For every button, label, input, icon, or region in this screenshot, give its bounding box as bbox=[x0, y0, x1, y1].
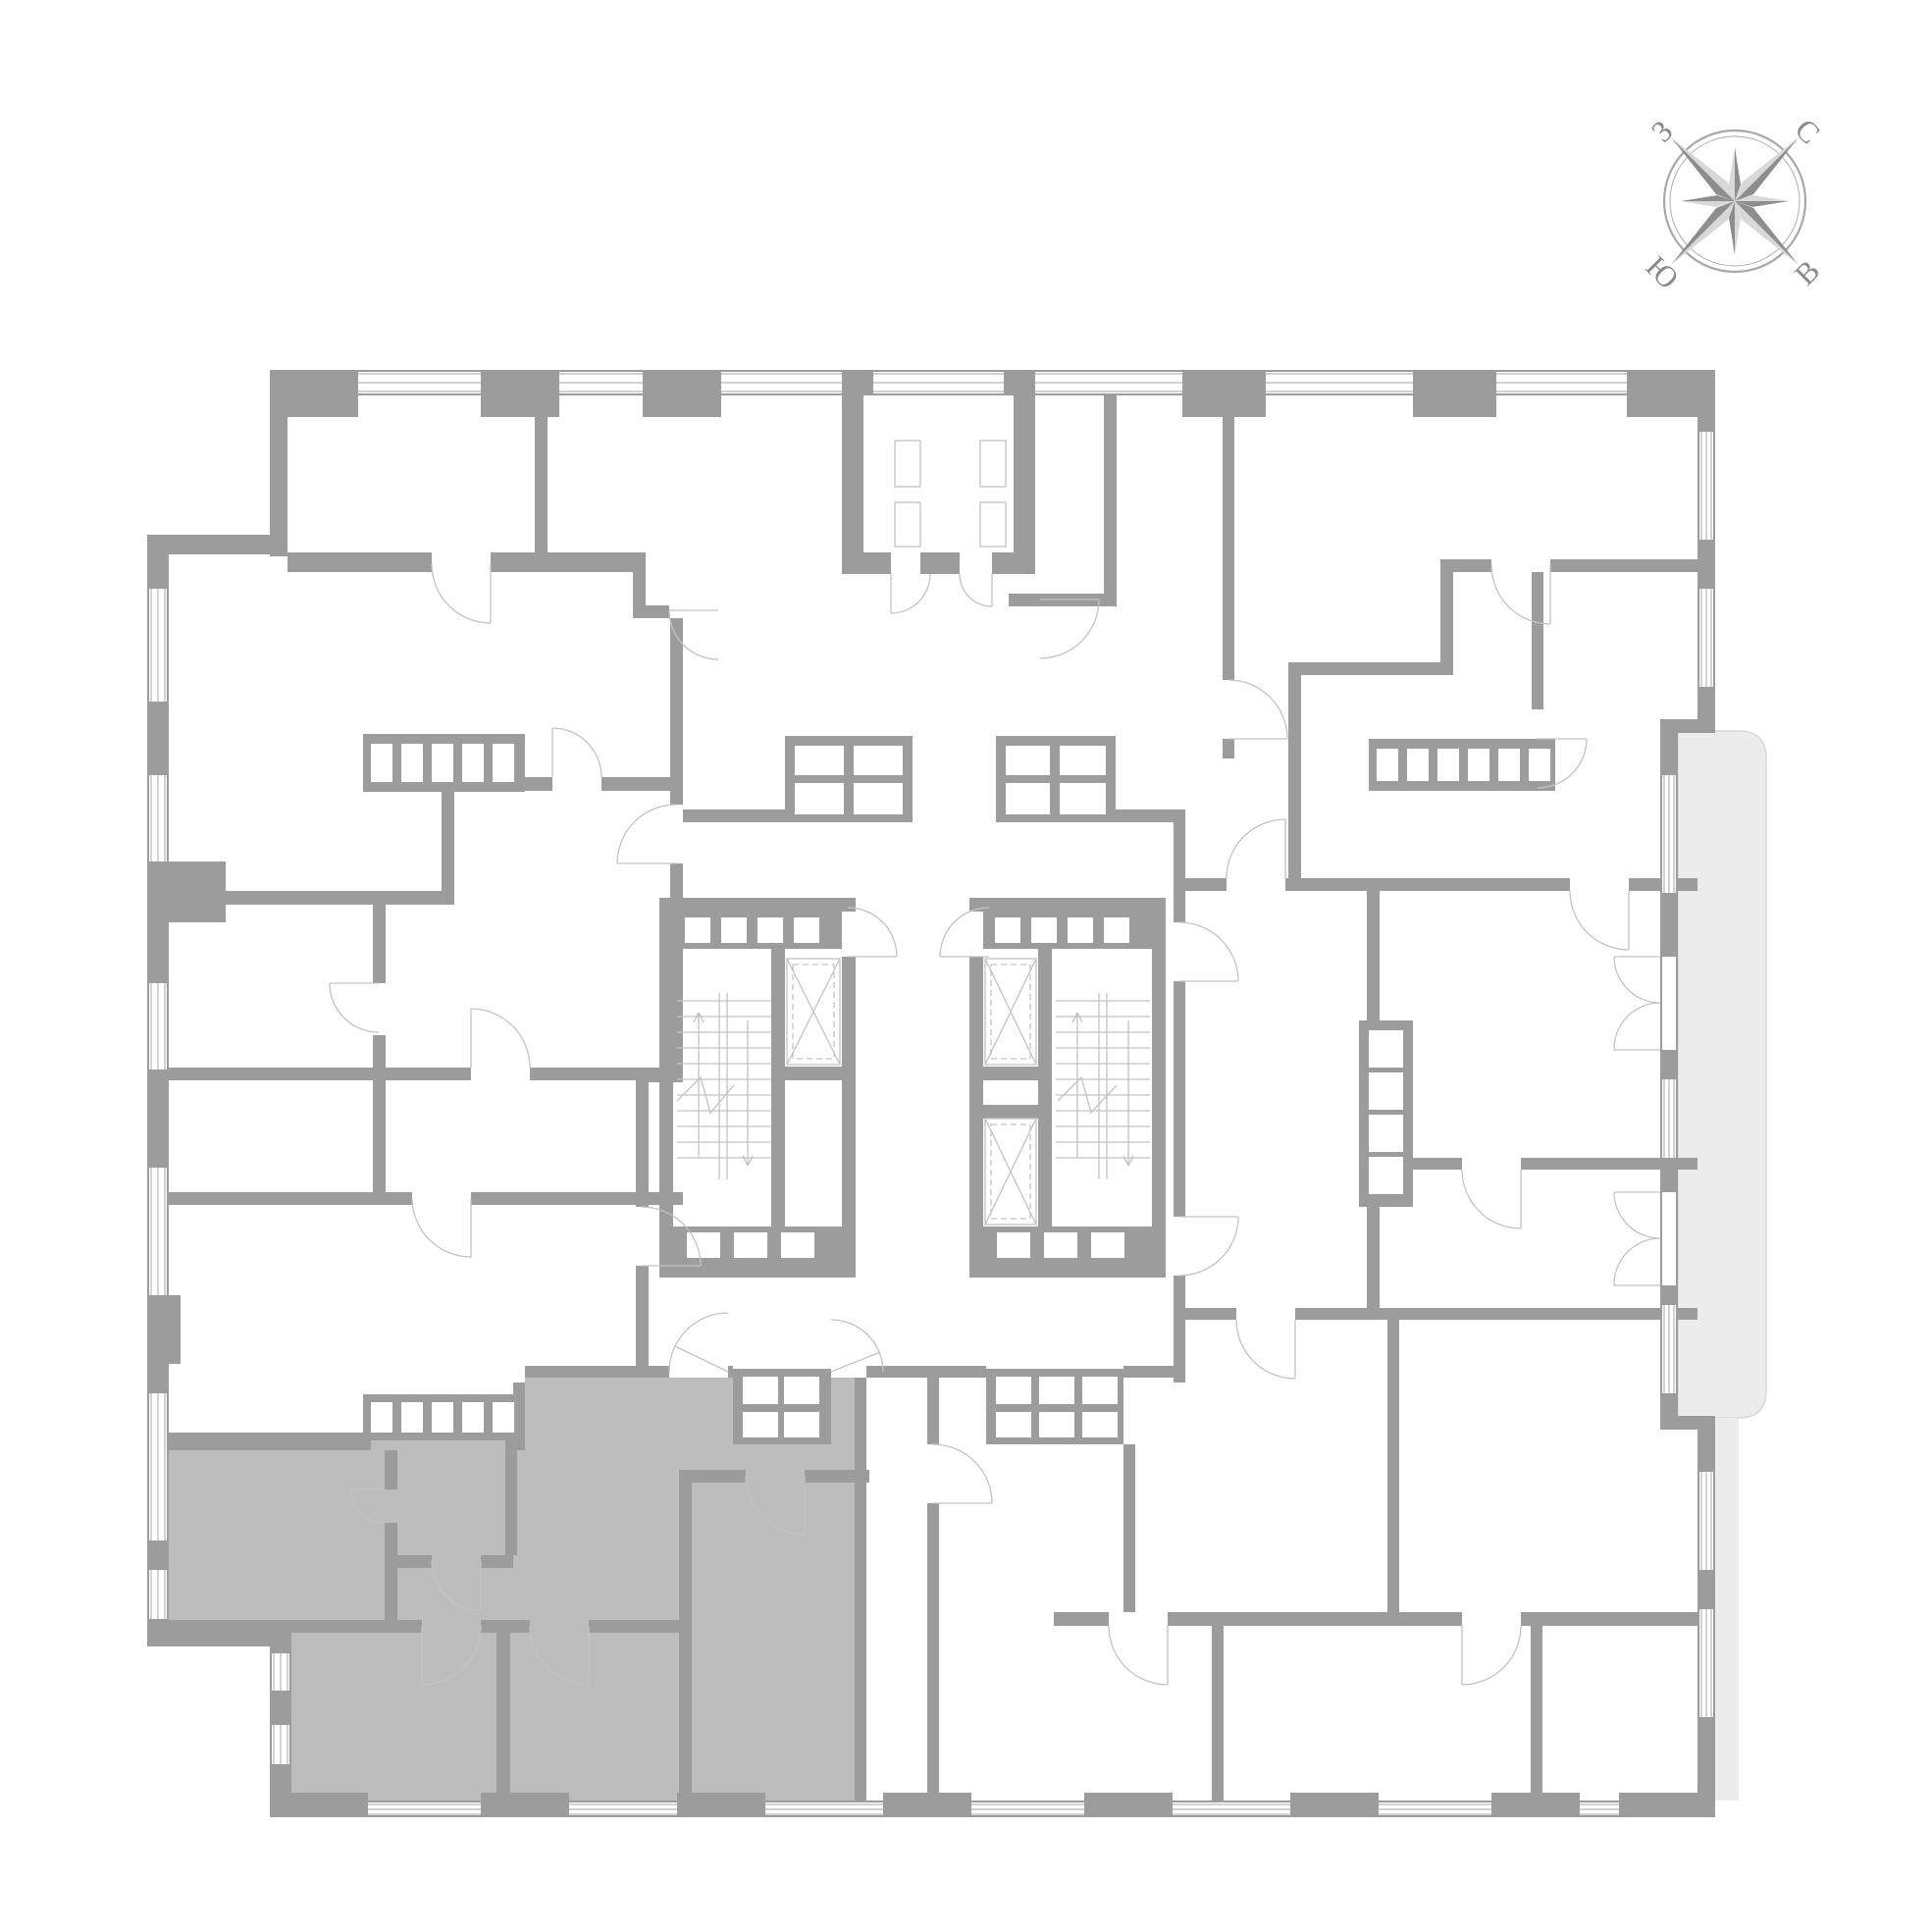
balcony-strip-lower bbox=[1715, 1418, 1739, 1801]
floor-plan-canvas: С З Ю В bbox=[0, 0, 1932, 1932]
floor-plan-page: С З Ю В bbox=[0, 0, 1932, 1932]
